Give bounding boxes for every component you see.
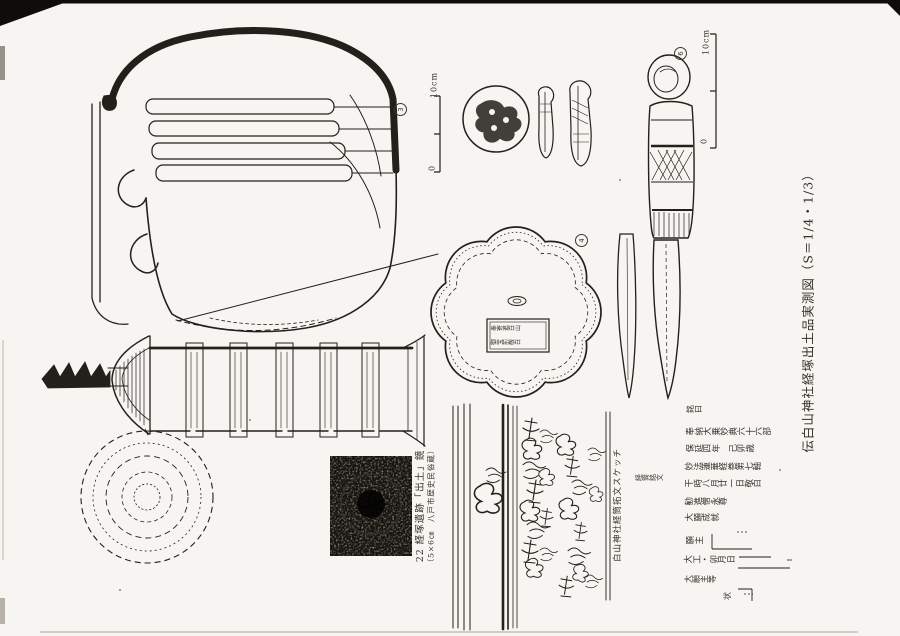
clasp-drawings bbox=[538, 81, 591, 166]
mirror-cartouche-line-1: 奉寄進白山 bbox=[492, 325, 522, 331]
transcription-row: 大工・卯月日 bbox=[685, 555, 736, 564]
sketch-caption: 白山神社経筒拓文スケッチ bbox=[611, 448, 623, 562]
transcription-row: 大願主等 bbox=[685, 575, 717, 583]
knife-scale-bar bbox=[710, 34, 716, 148]
container-drawing bbox=[42, 335, 425, 446]
inscription-sketch bbox=[453, 404, 610, 630]
transcription-row: 妙法蓮華経巻第七軸 bbox=[686, 462, 763, 471]
transcription-row: 銘曰 bbox=[687, 405, 703, 413]
mirror-cartouche-line-2: 御宝前敬白 bbox=[492, 339, 522, 345]
item-number-jar: 3 bbox=[394, 103, 407, 116]
transcription-row: 大願成就 bbox=[686, 513, 720, 522]
rubbing-photo bbox=[330, 456, 412, 556]
photo-caption-line-2: （5×6㎝ 八戸市歴史民俗蔵） bbox=[426, 446, 437, 567]
jar-scale-top-label: 10cm bbox=[430, 72, 439, 98]
item-number-mirror: 4 bbox=[575, 234, 588, 247]
transcription-row: 干時八月廿一日敬白 bbox=[686, 479, 763, 488]
ornament-disc-drawing bbox=[463, 86, 529, 152]
transcription-row: 保延四年 己卯歳 bbox=[687, 444, 755, 453]
jar-scale-bar bbox=[434, 96, 440, 172]
jar-scale-zero-label: 0 bbox=[428, 165, 437, 171]
scan-edge-artifacts bbox=[0, 0, 900, 632]
photo-caption-line-1: 22 経塚遺跡「出土」鏡 bbox=[412, 450, 426, 563]
transcription-rules bbox=[712, 532, 792, 601]
sketch-label: 経筒銘文 bbox=[636, 474, 664, 481]
transcription-row: 勧進僧永尊 bbox=[686, 497, 729, 506]
lid-top-view-drawing bbox=[81, 429, 213, 563]
jar-drawing bbox=[92, 31, 438, 332]
item-number-knife: 6 bbox=[674, 47, 687, 60]
knife-scale-top-label: 10cm bbox=[702, 29, 711, 55]
transcription-row: 奉納大乗妙典六十六部 bbox=[687, 427, 772, 436]
scanned-report-page: 伝白山神社経塚出土品実測図（S＝1/4・1/3） 3 10cm 0 4 6 10… bbox=[0, 0, 900, 636]
artifact-drawings bbox=[0, 0, 900, 636]
mirror-drawing bbox=[431, 227, 601, 397]
knife-scale-zero-label: 0 bbox=[700, 138, 709, 144]
transcription-row: 状 bbox=[724, 592, 732, 600]
transcription-row: 願主 bbox=[687, 536, 704, 545]
page-caption: 伝白山神社経塚出土品実測図（S＝1/4・1/3） bbox=[798, 167, 817, 452]
knife-drawing bbox=[618, 55, 694, 398]
